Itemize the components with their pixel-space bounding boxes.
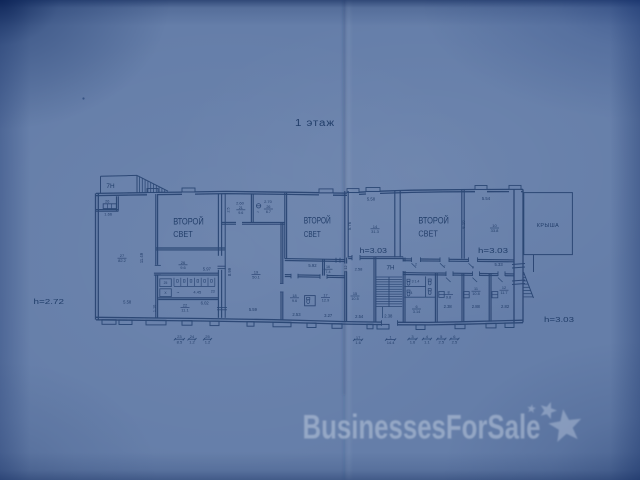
svg-text:11.1: 11.1: [181, 308, 189, 313]
svg-text:26: 26: [105, 200, 109, 204]
svg-text:СВЕТ: СВЕТ: [304, 230, 321, 239]
svg-text:3 1.4: 3 1.4: [412, 279, 420, 283]
svg-text:1.10: 1.10: [152, 305, 156, 312]
svg-text:7.4: 7.4: [325, 270, 330, 274]
svg-text:2.60: 2.60: [236, 200, 245, 205]
svg-text:23: 23: [177, 334, 182, 339]
svg-text:1.2: 1.2: [205, 340, 211, 345]
svg-text:7Н: 7Н: [106, 183, 115, 190]
svg-text:2.58: 2.58: [355, 267, 364, 272]
svg-text:1.6: 1.6: [355, 340, 361, 345]
svg-text:2.54: 2.54: [355, 314, 364, 319]
svg-text:12: 12: [502, 286, 506, 290]
svg-text:9.6: 9.6: [180, 265, 186, 270]
svg-text:15: 15: [353, 292, 357, 296]
svg-text:14.4: 14.4: [387, 340, 396, 345]
svg-text:ВТОРОЙ: ВТОРОЙ: [418, 215, 449, 227]
svg-text:9: 9: [472, 265, 474, 269]
svg-text:6: 6: [415, 305, 417, 309]
svg-text:6.02: 6.02: [201, 300, 210, 305]
svg-text:5.54: 5.54: [482, 196, 491, 201]
svg-text:9.8: 9.8: [446, 296, 451, 300]
svg-text:11.7: 11.7: [500, 291, 507, 295]
svg-text:9.6: 9.6: [292, 299, 297, 303]
svg-text:2.53: 2.53: [292, 312, 301, 317]
svg-text:8.5: 8.5: [177, 340, 183, 345]
svg-text:СВЕТ: СВЕТ: [418, 229, 438, 239]
svg-text:4: 4: [411, 291, 413, 295]
svg-text:h=3.03: h=3.03: [544, 315, 574, 324]
svg-text:21: 21: [239, 206, 243, 210]
svg-text:11: 11: [474, 287, 478, 291]
svg-text:12.9: 12.9: [322, 299, 329, 303]
svg-text:5.97: 5.97: [203, 267, 212, 272]
svg-text:h=3.03: h=3.03: [360, 246, 388, 255]
svg-text:8: 8: [447, 291, 449, 295]
svg-text:26: 26: [266, 205, 270, 209]
svg-text:82.2: 82.2: [118, 258, 127, 263]
svg-text:8.99: 8.99: [227, 267, 232, 276]
svg-text:5.33: 5.33: [495, 262, 504, 267]
svg-text:31.3: 31.3: [371, 229, 380, 234]
svg-text:4.12: 4.12: [344, 266, 348, 273]
svg-text:11.49: 11.49: [139, 252, 144, 263]
svg-text:5.92: 5.92: [308, 263, 317, 268]
svg-text:~: ~: [177, 290, 180, 295]
svg-text:2: 2: [415, 262, 417, 266]
svg-text:5.76: 5.76: [347, 221, 352, 230]
svg-text:3.14: 3.14: [413, 310, 420, 314]
svg-text:6.7: 6.7: [266, 210, 271, 214]
svg-text:ВТОРОЙ: ВТОРОЙ: [304, 214, 331, 225]
svg-text:25: 25: [205, 334, 210, 339]
svg-text:2.5: 2.5: [227, 208, 231, 213]
svg-text:33.8: 33.8: [491, 228, 500, 233]
svg-text:3.27: 3.27: [324, 313, 333, 318]
svg-text:17: 17: [323, 294, 327, 298]
svg-text:2.88: 2.88: [472, 304, 481, 309]
svg-text:h=2.72: h=2.72: [34, 297, 65, 306]
svg-text:h=3.03: h=3.03: [478, 246, 508, 255]
svg-text:17: 17: [356, 335, 361, 340]
svg-text:2.82: 2.82: [501, 304, 510, 309]
svg-text:2.38: 2.38: [384, 313, 393, 318]
svg-text:7Н: 7Н: [387, 264, 395, 271]
svg-text:5.58: 5.58: [123, 299, 132, 304]
svg-text:1.1: 1.1: [424, 339, 430, 344]
svg-text:24: 24: [190, 334, 195, 339]
svg-text:2.5: 2.5: [452, 339, 458, 344]
svg-text:50.1: 50.1: [252, 275, 261, 280]
svg-text:1.66: 1.66: [104, 212, 113, 217]
svg-text:2.70: 2.70: [264, 199, 273, 204]
svg-text:6.10: 6.10: [461, 220, 466, 229]
svg-text:КРЫША: КРЫША: [537, 223, 560, 229]
svg-text:BusinessesForSale: BusinessesForSale: [303, 409, 541, 447]
svg-text:5.59: 5.59: [249, 307, 258, 312]
svg-text:ВТОРОЙ: ВТОРОЙ: [173, 216, 204, 228]
svg-text:10.5: 10.5: [351, 297, 358, 301]
svg-text:1 этаж: 1 этаж: [295, 118, 335, 129]
svg-text:18: 18: [292, 294, 296, 298]
svg-text:10.8: 10.8: [472, 292, 479, 296]
svg-text:2.38: 2.38: [444, 304, 453, 309]
svg-text:2.5: 2.5: [439, 339, 445, 344]
svg-text:9.6: 9.6: [238, 211, 243, 215]
svg-text:25: 25: [164, 281, 168, 285]
svg-text:СВЕТ: СВЕТ: [173, 229, 193, 239]
svg-text:5.58: 5.58: [367, 197, 376, 202]
svg-text:23: 23: [211, 290, 215, 294]
svg-text:1.6: 1.6: [410, 339, 416, 344]
svg-text:7: 7: [444, 265, 446, 269]
svg-text:4.45: 4.45: [193, 289, 202, 294]
svg-text:1.2: 1.2: [189, 340, 195, 345]
svg-text:16: 16: [326, 265, 330, 269]
